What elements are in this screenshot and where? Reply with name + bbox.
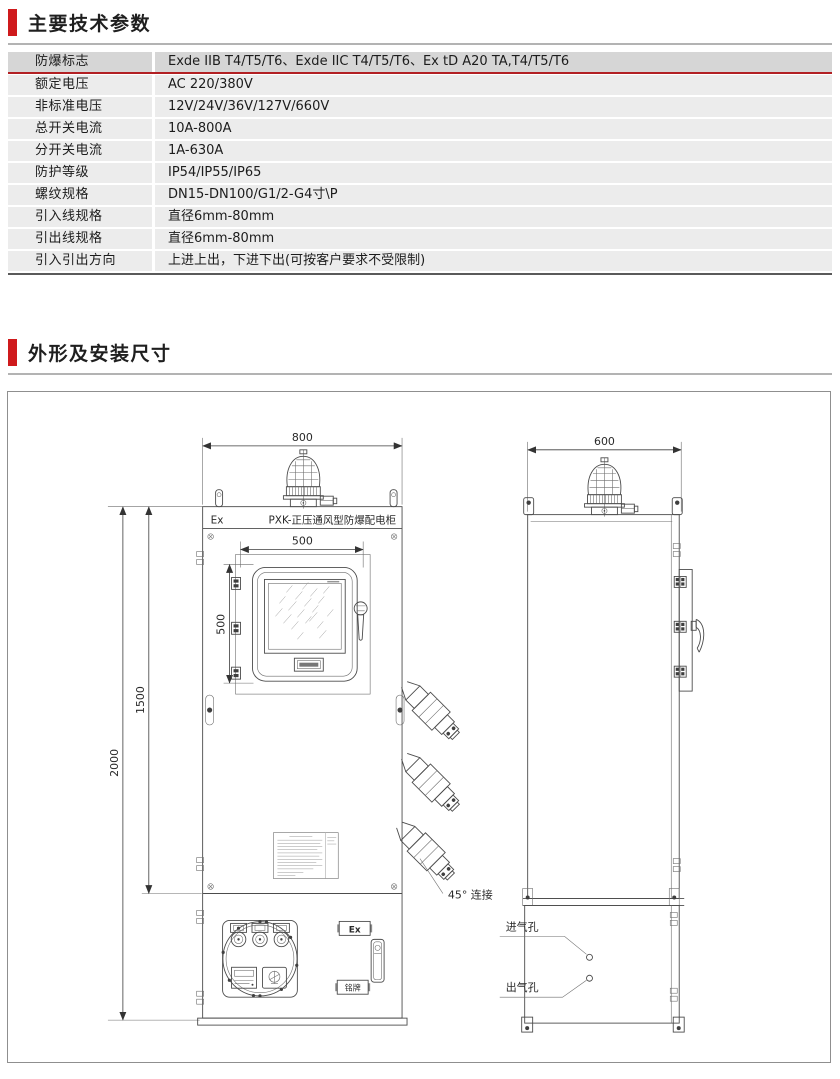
param-label: 额定电压 bbox=[8, 75, 152, 95]
svg-text:500: 500 bbox=[292, 535, 313, 548]
side-view: 600 bbox=[500, 435, 704, 1032]
screw-icon bbox=[208, 884, 214, 890]
beacon-light-icon bbox=[585, 458, 638, 517]
spec-nameplate bbox=[273, 833, 338, 879]
door-handle-icon bbox=[354, 602, 367, 640]
cabinet-feet bbox=[522, 1017, 685, 1032]
svg-text:800: 800 bbox=[292, 431, 313, 444]
dimension-800: 800 bbox=[203, 431, 402, 505]
param-value: 1A-630A bbox=[155, 141, 832, 161]
section-params-underline bbox=[8, 43, 832, 45]
table-row: 引入引出方向 上进上出，下进下出(可按客户要求不受限制) bbox=[8, 251, 832, 271]
lifting-lug-icon bbox=[524, 498, 683, 515]
table-row: 分开关电流 1A-630A bbox=[8, 141, 832, 161]
air-inlet-callout: 进气孔 bbox=[500, 919, 587, 954]
cable-gland-icon bbox=[395, 747, 465, 817]
dimension-1500: 1500 bbox=[134, 507, 202, 894]
svg-text:45° 连接: 45° 连接 bbox=[448, 888, 493, 901]
air-outlet-callout: 出气孔 bbox=[500, 980, 587, 997]
svg-text:500: 500 bbox=[215, 614, 228, 635]
front-view: 800 2000 1500 Ex PXK-正压通风型防爆配电柜 bbox=[108, 431, 493, 1025]
screen-bezel bbox=[264, 579, 345, 653]
lifting-lug-icon bbox=[216, 490, 397, 507]
dimension-drawing: 800 2000 1500 Ex PXK-正压通风型防爆配电柜 bbox=[8, 392, 830, 1062]
param-label: 引出线规格 bbox=[8, 229, 152, 249]
param-label: 引入引出方向 bbox=[8, 251, 152, 271]
dimension-drawing-frame: 800 2000 1500 Ex PXK-正压通风型防爆配电柜 bbox=[7, 391, 831, 1063]
param-value: Exde IIB T4/T5/T6、Exde IIC T4/T5/T6、Ex t… bbox=[155, 52, 832, 72]
cable-gland-icon bbox=[395, 675, 465, 745]
param-label: 总开关电流 bbox=[8, 119, 152, 139]
catalog-page: { "colors": { "accent_red": "#cf1a1c", "… bbox=[0, 0, 840, 1079]
section-dims-title: 外形及安装尺寸 bbox=[28, 339, 172, 366]
gland-angle-callout: 45° 连接 bbox=[420, 859, 493, 902]
valve-symbol-icon bbox=[262, 967, 286, 988]
joint-flange bbox=[523, 889, 685, 906]
band-ex-mark: Ex bbox=[211, 515, 224, 527]
svg-text:铭牌: 铭牌 bbox=[345, 983, 361, 993]
hinge-icon bbox=[232, 667, 241, 679]
plug-connector-icon bbox=[252, 923, 268, 946]
params-table: 防爆标志 Exde IIB T4/T5/T6、Exde IIC T4/T5/T6… bbox=[8, 52, 832, 275]
table-row: 防护等级 IP54/IP55/IP65 bbox=[8, 163, 832, 183]
param-value: DN15-DN100/G1/2-G4寸\P bbox=[155, 185, 832, 205]
hinge-icon bbox=[674, 666, 686, 677]
svg-text:Ex: Ex bbox=[349, 925, 361, 935]
param-value: IP54/IP55/IP65 bbox=[155, 163, 832, 183]
key-slot-icon bbox=[371, 939, 384, 982]
table-row: 额定电压 AC 220/380V bbox=[8, 75, 832, 95]
param-value: 10A-800A bbox=[155, 119, 832, 139]
air-outlet-hole bbox=[587, 975, 593, 981]
screw-icon bbox=[391, 884, 397, 890]
meter-icon bbox=[232, 967, 257, 988]
table-row: 引入线规格 直径6mm-80mm bbox=[8, 207, 832, 227]
dimension-2000: 2000 bbox=[108, 507, 203, 1020]
nameplate-plate: 铭牌 bbox=[335, 980, 370, 994]
control-flange-panel bbox=[222, 920, 299, 997]
hinge-icon bbox=[232, 577, 241, 589]
param-label: 螺纹规格 bbox=[8, 185, 152, 205]
red-accent-bar bbox=[8, 339, 17, 366]
svg-text:2000: 2000 bbox=[108, 749, 121, 777]
section-dims-header: 外形及安装尺寸 bbox=[8, 339, 172, 366]
screw-icon bbox=[208, 534, 214, 540]
param-label: 防护等级 bbox=[8, 163, 152, 183]
section-params-header: 主要技术参数 bbox=[8, 9, 151, 36]
param-label: 分开关电流 bbox=[8, 141, 152, 161]
cable-gland-icon bbox=[390, 816, 460, 886]
side-lower-box bbox=[525, 905, 680, 1023]
svg-text:进气孔: 进气孔 bbox=[506, 919, 539, 933]
beacon-light-icon bbox=[283, 450, 336, 509]
table-row: 螺纹规格 DN15-DN100/G1/2-G4寸\P bbox=[8, 185, 832, 205]
side-body-outline bbox=[528, 515, 680, 899]
section-params-title: 主要技术参数 bbox=[28, 9, 151, 36]
band-title: PXK-正压通风型防爆配电柜 bbox=[268, 514, 396, 527]
table-row: 引出线规格 直径6mm-80mm bbox=[8, 229, 832, 249]
table-row: 总开关电流 10A-800A bbox=[8, 119, 832, 139]
red-accent-bar bbox=[8, 9, 17, 36]
glass-reflection-hatch bbox=[275, 582, 333, 639]
svg-text:600: 600 bbox=[594, 435, 615, 448]
table-row: 非标准电压 12V/24V/36V/127V/660V bbox=[8, 97, 832, 117]
param-value: AC 220/380V bbox=[155, 75, 832, 95]
air-inlet-hole bbox=[587, 954, 593, 960]
section-dims-underline bbox=[8, 373, 832, 375]
dimension-500-width: 500 bbox=[241, 535, 364, 568]
hinge-icon bbox=[232, 622, 241, 634]
cabinet-base bbox=[198, 1018, 407, 1025]
param-value: 上进上出，下进下出(可按客户要求不受限制) bbox=[155, 251, 832, 271]
edge-bolt-icon bbox=[206, 695, 404, 725]
hinge-icon bbox=[674, 621, 686, 632]
svg-text:出气孔: 出气孔 bbox=[506, 980, 539, 994]
screw-icon bbox=[391, 534, 397, 540]
param-label: 防爆标志 bbox=[8, 52, 152, 72]
param-label: 非标准电压 bbox=[8, 97, 152, 117]
table-row: 防爆标志 Exde IIB T4/T5/T6、Exde IIC T4/T5/T6… bbox=[8, 52, 832, 74]
hinge-icon bbox=[674, 576, 686, 587]
screen-glass bbox=[268, 583, 341, 649]
svg-text:1500: 1500 bbox=[134, 686, 147, 714]
side-handle-icon bbox=[691, 619, 704, 652]
ex-plate: Ex bbox=[337, 921, 372, 935]
plug-connector-icon bbox=[273, 923, 289, 946]
param-value: 直径6mm-80mm bbox=[155, 207, 832, 227]
param-label: 引入线规格 bbox=[8, 207, 152, 227]
param-value: 直径6mm-80mm bbox=[155, 229, 832, 249]
param-value: 12V/24V/36V/127V/660V bbox=[155, 97, 832, 117]
